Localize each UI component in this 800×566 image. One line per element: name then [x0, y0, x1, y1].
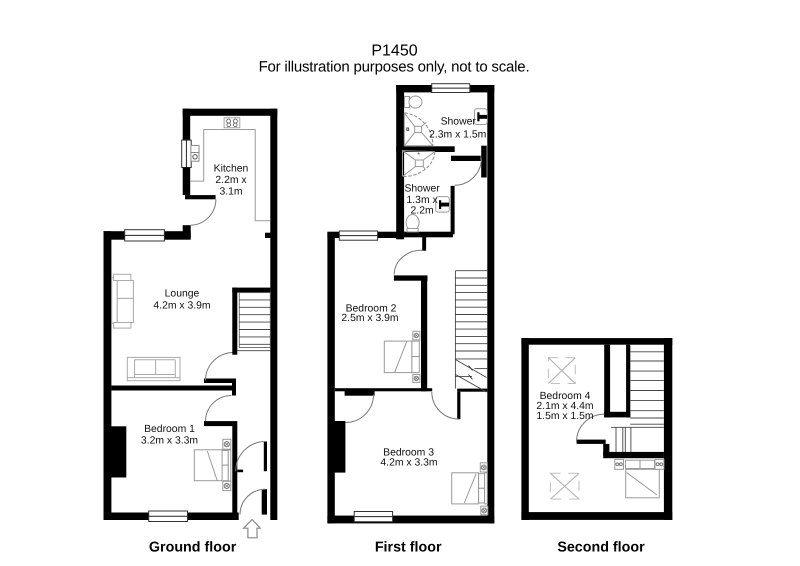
svg-text:Ground floor: Ground floor	[149, 539, 237, 555]
svg-text:Shower: Shower	[441, 117, 477, 128]
svg-text:Bedroom 1: Bedroom 1	[144, 424, 195, 435]
svg-text:3.2m x 3.3m: 3.2m x 3.3m	[141, 436, 198, 447]
svg-text:1.3m x: 1.3m x	[407, 195, 439, 206]
svg-text:Lounge: Lounge	[165, 289, 200, 300]
svg-text:2.2m x: 2.2m x	[215, 175, 247, 186]
svg-text:Shower: Shower	[404, 184, 440, 195]
svg-text:1.5m x 1.5m: 1.5m x 1.5m	[536, 411, 593, 422]
svg-text:2.2m: 2.2m	[411, 205, 434, 216]
svg-text:First floor: First floor	[375, 539, 442, 555]
svg-text:2.5m x 3.9m: 2.5m x 3.9m	[341, 313, 398, 324]
svg-text:2.3m x 1.5m: 2.3m x 1.5m	[429, 130, 486, 141]
svg-text:4.2m x 3.9m: 4.2m x 3.9m	[153, 301, 210, 312]
svg-text:Kitchen: Kitchen	[214, 164, 249, 175]
svg-text:Second floor: Second floor	[557, 539, 645, 555]
svg-text:P1450: P1450	[371, 43, 417, 60]
svg-text:For illustration purposes only: For illustration purposes only, not to s…	[259, 58, 530, 75]
svg-text:4.2m x 3.3m: 4.2m x 3.3m	[380, 457, 437, 468]
svg-text:3.1m: 3.1m	[219, 187, 242, 198]
